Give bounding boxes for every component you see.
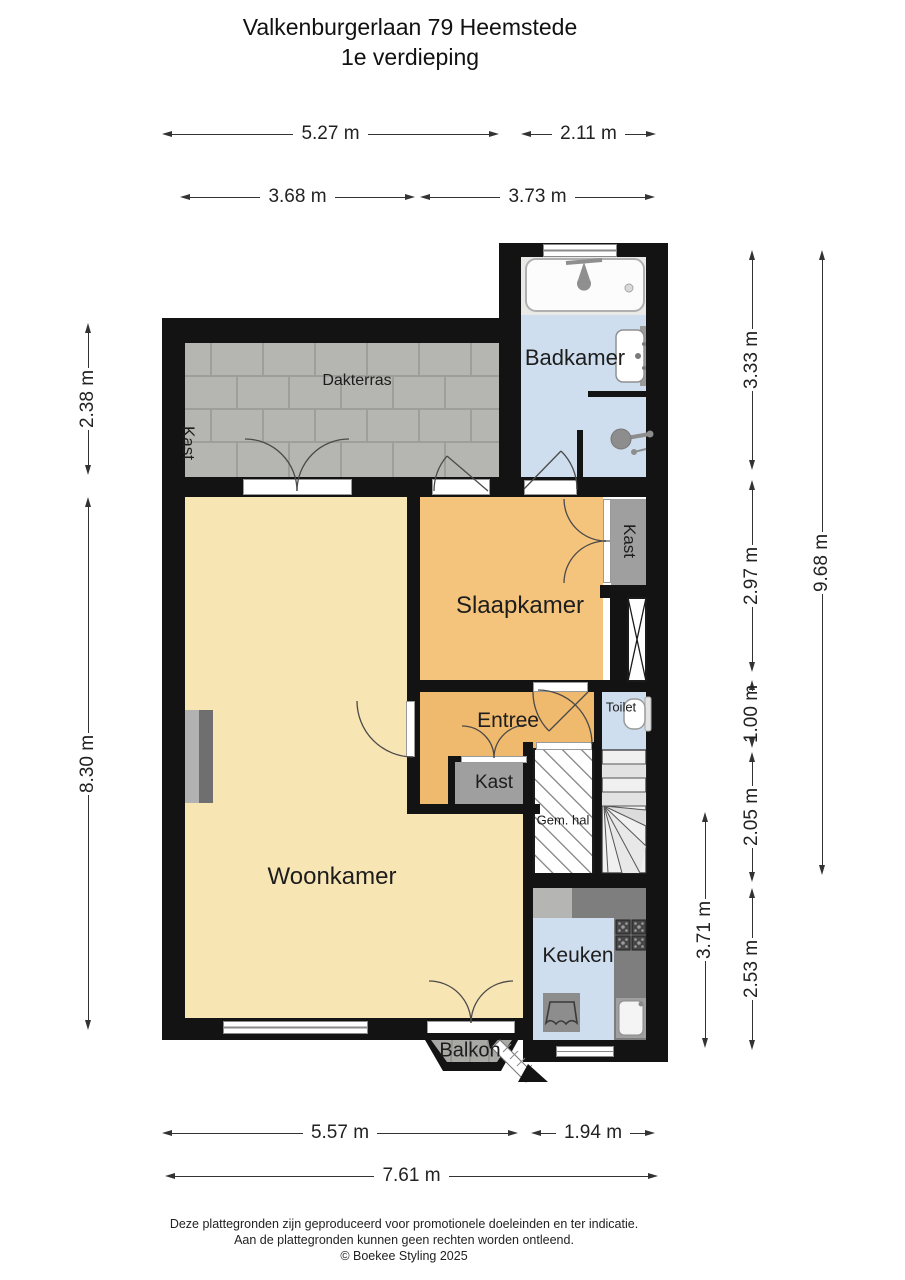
- livingroom-door-leaf: [406, 701, 415, 757]
- x-shaft: [628, 598, 646, 681]
- room-label-badkamer: Badkamer: [525, 345, 625, 371]
- dim-right-2-05: 2.05 m: [743, 752, 761, 882]
- floorplan-page: Valkenburgerlaan 79 Heemstede 1e verdiep…: [0, 0, 905, 1280]
- dining-table: [543, 993, 580, 1032]
- room-label-keuken: Keuken: [542, 944, 613, 968]
- dim-left-8-30: 8.30 m: [79, 497, 97, 1030]
- room-label-kast-entree: Kast: [475, 772, 513, 794]
- dim-right-3-71: 3.71 m: [696, 812, 714, 1048]
- wall-stub: [577, 430, 583, 477]
- wall: [499, 243, 521, 497]
- window: [556, 1046, 614, 1057]
- terrace-door-sill: [432, 479, 490, 495]
- dim-top-2-11: 2.11 m: [521, 125, 656, 143]
- balcony-door-sill: [427, 1021, 515, 1034]
- room-label-woonkamer: Woonkamer: [268, 863, 397, 891]
- wall: [594, 750, 602, 873]
- dim-top-5-27: 5.27 m: [162, 125, 499, 143]
- footer-copyright: © Boekee Styling 2025: [170, 1248, 638, 1264]
- wall: [162, 318, 499, 343]
- terrace-door-sill: [243, 479, 352, 495]
- room-label-balkon: Balkon: [439, 1040, 500, 1063]
- dim-right-2-97: 2.97 m: [743, 480, 761, 672]
- fireplace-light: [185, 710, 199, 803]
- wall: [407, 497, 420, 814]
- wall: [523, 742, 533, 1040]
- fireplace-dark: [199, 710, 213, 803]
- bathroom-door-sill: [524, 480, 577, 495]
- window: [543, 244, 617, 257]
- bedroom-door-sill: [533, 682, 588, 692]
- wall: [523, 873, 646, 888]
- room-label-kast-terras: Kast: [178, 426, 198, 460]
- window: [223, 1021, 368, 1034]
- dim-top-3-68: 3.68 m: [180, 188, 415, 206]
- wall: [600, 585, 646, 598]
- room-label-gem-hal: Gem. hal: [537, 813, 590, 828]
- entrance-door-sill: [536, 742, 592, 750]
- title-address: Valkenburgerlaan 79 Heemstede: [0, 12, 820, 42]
- closet-door-sill: [461, 756, 527, 763]
- dim-right-2-53: 2.53 m: [743, 888, 761, 1050]
- dim-right-3-33: 3.33 m: [743, 250, 761, 470]
- closet-door-leaf: [603, 541, 611, 583]
- wall: [610, 598, 630, 682]
- dim-bottom-5-57: 5.57 m: [162, 1124, 518, 1142]
- room-label-toilet: Toilet: [606, 700, 636, 715]
- wall: [407, 804, 540, 814]
- terrace-tiles: [185, 343, 499, 477]
- dim-left-2-38: 2.38 m: [79, 323, 97, 475]
- wall-stub: [592, 742, 602, 750]
- room-label-kast-slaapkamer: Kast: [619, 524, 639, 558]
- kitchen-cupboard: [531, 888, 572, 918]
- room-label-entree: Entree: [477, 709, 539, 733]
- dim-bottom-1-94: 1.94 m: [531, 1124, 655, 1142]
- badkamer-tub-zone: [521, 257, 646, 315]
- title-floor: 1e verdieping: [0, 42, 820, 72]
- footer-line-1: Deze plattegronden zijn geproduceerd voo…: [170, 1216, 638, 1232]
- closet-door-leaf: [603, 499, 611, 541]
- kitchen-counter: [572, 888, 646, 918]
- page-title: Valkenburgerlaan 79 Heemstede 1e verdiep…: [0, 12, 820, 72]
- closet-sliding-door: [203, 414, 211, 472]
- wall-stub: [588, 391, 646, 397]
- room-gem-hal: [533, 748, 594, 875]
- room-slaapkamer: [420, 497, 603, 680]
- footer-line-2: Aan de plattegronden kunnen geen rechten…: [170, 1232, 638, 1248]
- room-label-slaapkamer: Slaapkamer: [456, 592, 584, 620]
- room-woonkamer-ext: [407, 814, 523, 1018]
- wall: [594, 680, 602, 750]
- stairs: [602, 750, 646, 873]
- room-woonkamer: [185, 497, 407, 1018]
- dim-right-9-68: 9.68 m: [813, 250, 831, 875]
- footer-disclaimer: Deze plattegronden zijn geproduceerd voo…: [170, 1216, 638, 1264]
- wall: [646, 243, 668, 1062]
- dim-right-1-00: 1.00 m: [743, 680, 761, 748]
- room-label-dakterras: Dakterras: [322, 372, 391, 390]
- dim-bottom-7-61: 7.61 m: [165, 1167, 658, 1185]
- dim-top-3-73: 3.73 m: [420, 188, 655, 206]
- kitchen-counter-right: [614, 918, 646, 1040]
